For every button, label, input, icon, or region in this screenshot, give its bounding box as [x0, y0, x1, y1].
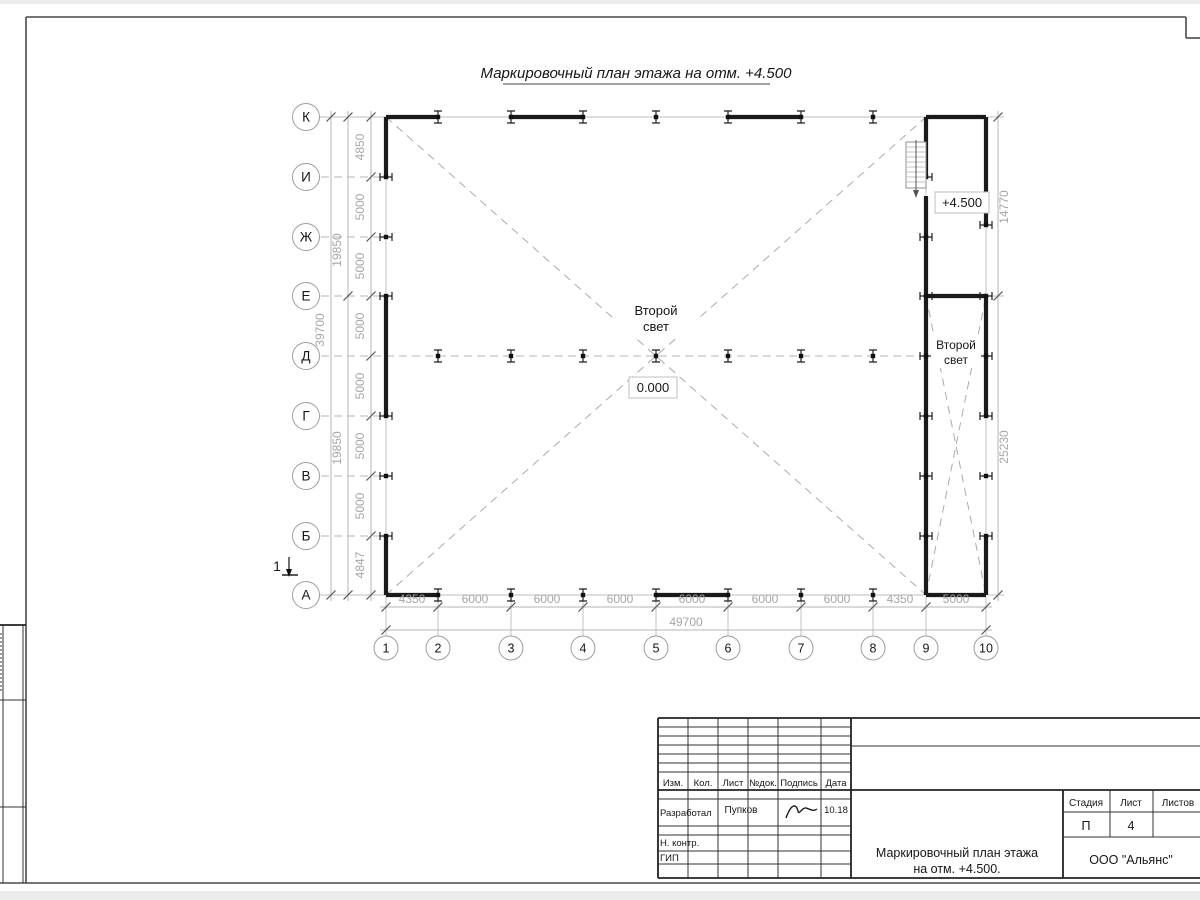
- dim-zh-e: 5000: [353, 252, 367, 279]
- tb-sheet-label: Лист: [1120, 798, 1142, 809]
- grid-col-label-7: 7: [798, 642, 805, 656]
- level-upper-label: +4.500: [942, 195, 982, 210]
- grid-row-label-i: И: [301, 170, 311, 185]
- dim-right-bottom: 25230: [997, 430, 1011, 464]
- dim-3-4: 6000: [534, 592, 561, 606]
- tb-developed-label: Разработал: [660, 808, 712, 819]
- second-light-hall-line2: свет: [643, 319, 669, 334]
- grid-row-label-v: В: [301, 469, 310, 484]
- dim-8-9: 4350: [887, 592, 914, 606]
- tb-header-kol: Кол.: [694, 778, 713, 789]
- tb-header-list: Лист: [723, 778, 744, 789]
- drawing-title-text: Маркировочный план этажа на отм. +4.500: [481, 65, 793, 82]
- tb-sheets-label: Листов: [1162, 798, 1195, 809]
- tb-header-ndok: №док.: [749, 778, 777, 789]
- dim-e-d: 5000: [353, 312, 367, 339]
- section-mark-number: 1: [273, 558, 281, 574]
- floor-plan-svg: Маркировочный план этажа на отм. +4.500: [0, 0, 1200, 900]
- second-light-side-line2: свет: [944, 353, 969, 367]
- dim-total-width: 49700: [669, 615, 703, 629]
- tb-sheet-value: 4: [1128, 819, 1135, 833]
- dim-total-height: 39700: [313, 313, 327, 347]
- grid-col-label-6: 6: [725, 642, 732, 656]
- tb-header-izm: Изм.: [663, 778, 683, 789]
- tb-header-data: Дата: [825, 778, 847, 789]
- grid-col-label-4: 4: [580, 642, 587, 656]
- tb-developed-name: Пупков: [725, 805, 758, 816]
- second-light-side-line1: Второй: [936, 338, 976, 352]
- dim-7-8: 6000: [824, 592, 851, 606]
- dim-i-zh: 5000: [353, 193, 367, 220]
- dim-left-mid-top: 19850: [330, 233, 344, 267]
- drawing-title: Маркировочный план этажа на отм. +4.500: [481, 65, 793, 84]
- dim-d-g: 5000: [353, 372, 367, 399]
- dim-5-6: 6000: [679, 592, 706, 606]
- tb-company: ООО "Альянс": [1089, 853, 1173, 867]
- grid-row-label-a: А: [301, 588, 310, 603]
- dim-v-b: 5000: [353, 492, 367, 519]
- dim-4-5: 6000: [607, 592, 634, 606]
- grid-col-label-5: 5: [653, 642, 660, 656]
- grid-row-label-d: Д: [301, 349, 310, 364]
- second-light-hall-line1: Второй: [635, 303, 678, 318]
- grid-row-label-k: К: [302, 110, 310, 125]
- dim-9-10: 5000: [943, 592, 970, 606]
- grid-row-label-b: Б: [302, 529, 311, 544]
- tb-stage-value: П: [1082, 819, 1091, 833]
- grid-col-label-3: 3: [508, 642, 515, 656]
- dim-b-a: 4847: [353, 551, 367, 578]
- drawing-sheet: Маркировочный план этажа на отм. +4.500: [0, 0, 1200, 900]
- tb-gip-label: ГИП: [660, 853, 679, 864]
- level-zero-label: 0.000: [637, 380, 670, 395]
- grid-col-label-2: 2: [435, 642, 442, 656]
- dim-right-top: 14770: [997, 190, 1011, 224]
- grid-col-label-10: 10: [979, 642, 993, 656]
- grid-col-label-8: 8: [870, 642, 877, 656]
- grid-col-label-9: 9: [923, 642, 930, 656]
- paper-sheet: [0, 4, 1200, 891]
- tb-doc-title-line2: на отм. +4.500.: [913, 862, 1000, 876]
- dim-g-v: 5000: [353, 432, 367, 459]
- tb-date: 10.18: [824, 805, 848, 816]
- tb-header-podpis: Подпись: [780, 778, 818, 789]
- grid-row-label-zh: Ж: [300, 230, 313, 245]
- dim-6-7: 6000: [752, 592, 779, 606]
- grid-col-label-1: 1: [383, 642, 390, 656]
- dim-1-2: 4350: [399, 592, 426, 606]
- tb-stage-label: Стадия: [1069, 798, 1103, 809]
- tb-norm-control-label: Н. контр.: [660, 838, 699, 849]
- dim-k-i: 4850: [353, 133, 367, 160]
- tb-doc-title-line1: Маркировочный план этажа: [876, 846, 1038, 860]
- grid-row-bubbles: К И Ж Е Д Г В Б А: [293, 104, 320, 609]
- grid-row-label-e: Е: [301, 289, 310, 304]
- dim-left-mid-bottom: 19850: [330, 431, 344, 465]
- grid-row-label-g: Г: [302, 409, 310, 424]
- dim-2-3: 6000: [462, 592, 489, 606]
